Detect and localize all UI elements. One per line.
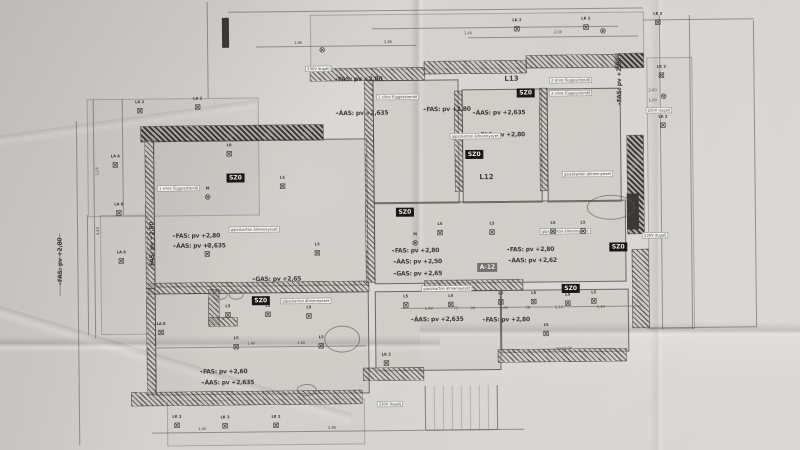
stair-tread	[434, 386, 435, 430]
note-box: 2 sínre függesztendő	[549, 90, 592, 97]
lamp-code: L5	[306, 305, 311, 309]
lamp-code: L5	[448, 294, 453, 298]
lamp-code: LK 2	[512, 18, 521, 22]
ceiling-height-label: FAS: pv +2,80	[57, 238, 65, 286]
lamp-code: LK 2	[653, 12, 662, 16]
wall-segment	[424, 61, 526, 74]
lamp-symbol-square: ⊠	[512, 24, 521, 33]
lamp-code: L5	[205, 243, 210, 247]
ceiling-height-label: ÁAS: pv +2,635	[472, 109, 525, 117]
lamp-code: LK 3	[220, 415, 229, 419]
dimension-text: 1,40	[198, 427, 206, 431]
lamp-code: M	[413, 232, 417, 236]
ceiling-height-label: FAS: pv +2,80	[482, 316, 530, 324]
lamp-code: LK 2	[382, 352, 391, 356]
ceiling-height-label: GAS: pv +2,65	[393, 270, 442, 278]
lamp-symbol-square: ⊠	[549, 227, 558, 236]
shaft-symbol-chip: SZ0	[517, 88, 535, 97]
stair-tread	[488, 385, 489, 429]
dimension-text: 1,60	[297, 341, 305, 345]
room-outline	[100, 215, 149, 335]
stair-tread	[443, 386, 444, 430]
dimension-line	[645, 326, 757, 328]
lamp-symbol-square: ⊠	[263, 310, 272, 319]
lamp-code: L5	[580, 220, 585, 224]
lamp-symbol-square: ⊠	[221, 421, 230, 430]
stair-tread	[479, 385, 480, 429]
lamp-code: L5	[437, 222, 442, 226]
lamp-symbol-square: ⊠	[313, 248, 322, 257]
lamp-symbol-circle: ⊗	[318, 45, 327, 54]
wall-segment	[632, 249, 649, 327]
wall-segment	[363, 368, 423, 381]
lamp-symbol-square: ⊠	[278, 182, 287, 191]
lamp-symbol-circle: ⊗	[659, 92, 668, 101]
lamp-code: LK 2	[658, 115, 667, 119]
lamp-code: LK 2	[271, 415, 280, 419]
dimension-text: 75	[453, 306, 458, 310]
stair-tread	[497, 385, 498, 429]
shaft-symbol-chip: SZ0	[396, 208, 414, 217]
lamp-symbol-square: ⊠	[225, 149, 234, 158]
lamp-symbol-square: ⊠	[157, 328, 166, 337]
ceiling-height-label: FAS: pv +2,80	[148, 222, 156, 270]
lamp-symbol-square: ⊠	[382, 359, 391, 368]
dimension-line	[87, 215, 89, 335]
wall-segment	[526, 55, 618, 68]
dimension-text: 1,05	[95, 167, 99, 175]
lamp-symbol-square: ⊠	[173, 421, 182, 430]
shaft-symbol-chip: SZ0	[465, 150, 483, 159]
dimension-line	[753, 20, 757, 326]
lamp-code: L3	[315, 242, 320, 246]
note-box: 1 sínre függesztendő	[157, 185, 200, 192]
lamp-code: L5	[550, 221, 555, 225]
ceiling-height-label: ÁAS: pv +2,635	[335, 110, 388, 118]
note-box: gipszkarton álmennyezet	[450, 133, 501, 140]
lamp-code: L5	[319, 335, 324, 339]
ceiling-height-label: ÁAS: pv +2,635	[410, 316, 463, 324]
lamp-code: LA 2	[135, 100, 144, 104]
lamp-code: L5	[265, 304, 270, 308]
lamp-code: L5	[591, 290, 596, 294]
ceiling-height-label: FAS: pv +2,80	[391, 247, 439, 255]
lamp-symbol-square: ⊠	[581, 22, 590, 31]
dimension-text: 1,10	[555, 305, 563, 309]
lamp-code: LK 2	[657, 65, 666, 69]
lamp-code: LA 8	[111, 154, 120, 158]
ceiling-height-label: GAS: pv +2,65	[252, 276, 301, 284]
lamp-symbol-square: ⊠	[117, 256, 126, 265]
dimension-text: 4,40	[96, 227, 100, 235]
room-outline	[375, 290, 502, 371]
lamp-code: LK 2	[172, 415, 181, 419]
lamp-code: L5	[565, 293, 570, 297]
ceiling-height-label: ÁAS: pv +2,50	[393, 258, 442, 266]
lamp-symbol-square: ⊠	[111, 160, 120, 169]
lamp-symbol-square: ⊠	[401, 300, 410, 309]
stair-tread	[425, 386, 426, 430]
lamp-code: LA 8	[114, 202, 123, 206]
lamp-code: LA 8	[156, 322, 165, 326]
ceiling-height-label: ÁAS: pv +2,62	[508, 257, 557, 265]
ceiling-height-label: FAS: pv +2,80	[506, 246, 554, 254]
stair-tread	[461, 385, 462, 429]
room-outline	[462, 89, 543, 204]
note-box: gipszkarton álmennyezet	[562, 171, 613, 178]
wall-segment	[147, 289, 156, 395]
lamp-symbol-square: ⊠	[579, 227, 588, 236]
ceiling-height-label: FAS: pv +2,80	[423, 106, 471, 114]
lamp-symbol-square: ⊠	[272, 421, 281, 430]
lamp-symbol-square: ⊠	[193, 103, 202, 112]
room-outline	[547, 88, 622, 203]
lamp-symbol-square: ⊠	[114, 208, 123, 217]
wall-segment	[141, 125, 323, 142]
dimension-line	[207, 2, 209, 98]
lamp-code: L5	[234, 336, 239, 340]
stair-tread	[452, 385, 453, 429]
lamp-code: LK 2	[581, 16, 590, 20]
ceiling-height-label: ÁAS: pv +2,635	[201, 379, 254, 387]
note-box: pv=3,00	[555, 346, 573, 351]
note-box: 230V dugalj	[305, 66, 331, 73]
ceiling-height-label: FAS: pv +2,80	[616, 58, 624, 106]
lamp-symbol-circle: ⊗	[411, 238, 420, 247]
lamp-code: L9	[227, 143, 232, 147]
lamp-symbol-square: ⊠	[529, 297, 538, 306]
lamp-code: M	[206, 186, 210, 190]
lamp-code: L5	[531, 291, 536, 295]
lamp-code: LA 8	[117, 250, 126, 254]
lamp-code: L5	[280, 176, 285, 180]
dimension-text: 58	[525, 305, 530, 309]
note-box: gipszkarton álmennyezet	[229, 226, 280, 233]
ceiling-height-label: FAS: pv +2,60	[200, 368, 248, 376]
wall-segment	[132, 390, 362, 405]
dimension-text: 1,40	[597, 305, 605, 309]
lamp-code: L5	[489, 221, 494, 225]
lamp-symbol-square: ⊠	[657, 71, 666, 80]
room-outline	[167, 398, 365, 446]
note-box: 230V dugalj	[642, 232, 668, 239]
room-code: L12	[479, 173, 493, 181]
dimension-text: 1,40	[247, 341, 255, 345]
wall-segment	[540, 88, 548, 190]
lamp-symbol-square: ⊠	[436, 228, 445, 237]
dimension-text: 1,40	[425, 306, 433, 310]
lamp-symbol-square: ⊠	[232, 342, 241, 351]
note-box: gipszkarton álmennyezet	[280, 298, 331, 305]
shaft-symbol-chip: SZ0	[609, 242, 627, 251]
ceiling-height-label: FAS: pv +2,80	[172, 232, 220, 240]
note-box: 230V dugalj	[377, 401, 403, 408]
dimension-text: 90	[470, 306, 475, 310]
note-box: 1 sínre függesztendő	[376, 94, 419, 101]
section-tag-chip: A-12	[477, 263, 498, 272]
dimension-text: 1,40	[464, 31, 472, 35]
note-box: gipszkarton álmennyezet	[421, 285, 472, 292]
note-box: 2 sínre függesztendő	[549, 77, 592, 84]
shaft-symbol-chip: SZ0	[227, 173, 245, 182]
lamp-symbol-square: ⊠	[542, 329, 551, 338]
lamp-symbol-square: ⊠	[658, 121, 667, 130]
dimension-text: 2,00	[554, 30, 562, 34]
lamp-code: L5	[544, 323, 549, 327]
ceiling-height-label: ÁAS: pv +2,635	[173, 242, 226, 250]
dimension-text: 2,00	[648, 88, 656, 92]
lamp-symbol-square: ⊠	[653, 18, 662, 27]
lamp-code: L5	[225, 304, 230, 308]
dimension-text: 1,00	[649, 98, 657, 102]
lamp-code: LA 2	[193, 96, 202, 100]
shaft-symbol-chip: SZ0	[562, 284, 580, 293]
ceiling-height-label: FAS: pv +2,80	[334, 76, 382, 84]
room-code: L13	[504, 75, 518, 83]
dimension-text: 1,86	[294, 41, 302, 45]
stair-tread	[470, 385, 471, 429]
lamp-symbol-square: ⊠	[223, 310, 232, 319]
dimension-text: 2,86	[328, 426, 336, 430]
dimension-text: 2,86	[384, 40, 392, 44]
dimension-line	[76, 121, 80, 445]
lamp-symbol-square: ⊠	[135, 106, 144, 115]
lamp-code: L5	[403, 294, 408, 298]
dimension-text: 1,60	[500, 306, 508, 310]
lamp-symbol-square: ⊠	[203, 249, 212, 258]
lamp-symbol-circle: ⊗	[203, 192, 212, 201]
room-outline	[153, 138, 369, 287]
lamp-symbol-square: ⊠	[563, 299, 572, 308]
floor-plan-drawing: FAS: pv +2,80ÁAS: pv +2,635FAS: pv +2,80…	[0, 0, 800, 450]
lamp-symbol-square: ⊠	[317, 341, 326, 350]
wall-segment	[222, 18, 229, 48]
floor-plan-photo: FAS: pv +2,80ÁAS: pv +2,635FAS: pv +2,80…	[0, 0, 800, 450]
lamp-symbol-circle: ⊗	[598, 26, 607, 35]
lamp-code: L5	[498, 291, 503, 295]
note-box: 230V dugalj	[646, 107, 672, 114]
lamp-symbol-square: ⊠	[488, 227, 497, 236]
lamp-symbol-square: ⊠	[304, 311, 313, 320]
